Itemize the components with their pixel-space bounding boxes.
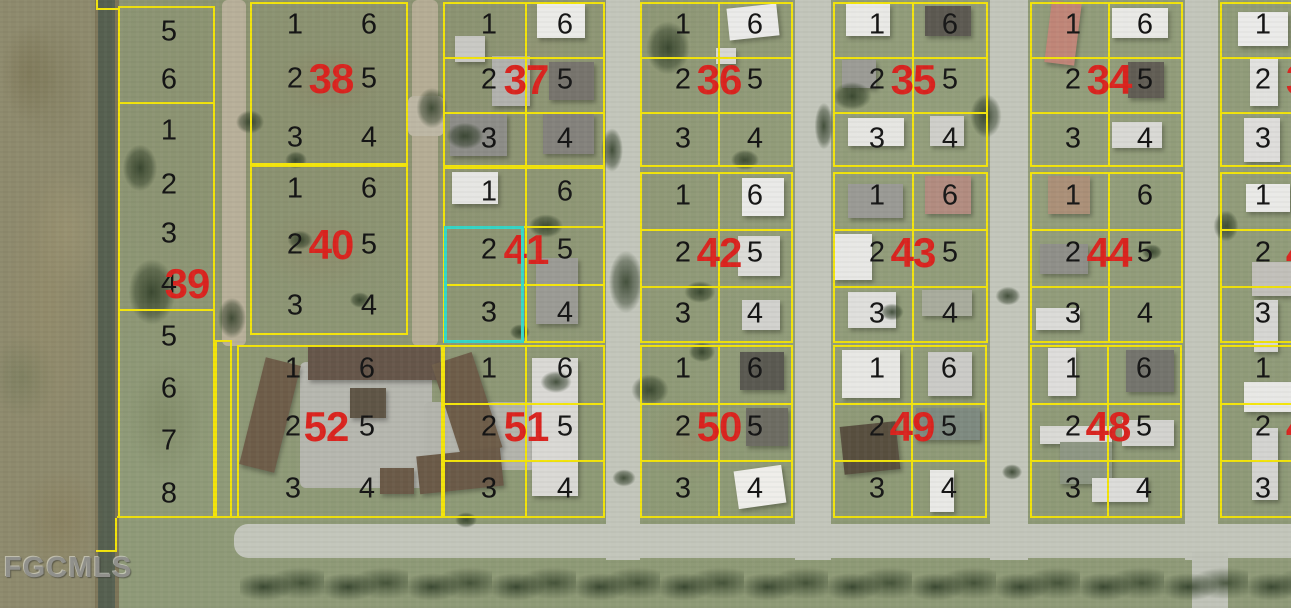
parcel-line <box>445 112 603 114</box>
lot-number: 6 <box>942 11 958 40</box>
block-number: 34 <box>1087 59 1132 101</box>
lot-number: 6 <box>1137 182 1153 211</box>
block-number: 50 <box>697 406 742 448</box>
lot-number: 1 <box>1255 11 1271 40</box>
lot-number: 4 <box>361 292 377 321</box>
lot-number: 3 <box>869 125 885 154</box>
lot-number: 1 <box>1255 182 1271 211</box>
parcel-line <box>1222 57 1291 59</box>
lot-number: 1 <box>481 11 497 40</box>
parcel-block-48: 12365448 <box>1030 345 1182 518</box>
lot-number: 5 <box>747 66 763 95</box>
lot-number: 3 <box>1255 125 1271 154</box>
lot-number: 3 <box>287 292 303 321</box>
lot-number: 1 <box>1255 355 1271 384</box>
block-number: 37 <box>504 59 549 101</box>
parcel-line <box>642 286 791 288</box>
lot-number: 1 <box>1065 182 1081 211</box>
lot-number: 1 <box>285 355 301 384</box>
block-number: 36 <box>697 59 742 101</box>
lot-number: 2 <box>675 413 691 442</box>
parcel-block-4: 1234 <box>1220 345 1291 518</box>
lot-number: 2 <box>161 171 177 200</box>
lot-number: 6 <box>1137 11 1153 40</box>
parcel-line <box>1222 403 1291 405</box>
lot-number: 2 <box>1065 66 1081 95</box>
lot-number: 5 <box>557 66 573 95</box>
parcel-block-34: 12365434 <box>1030 2 1183 167</box>
lot-number: 5 <box>1137 239 1153 268</box>
parcel-block-4: 1234 <box>1220 172 1291 343</box>
parcel-line <box>642 112 791 114</box>
lot-number: 4 <box>747 300 763 329</box>
lot-number: 4 <box>942 300 958 329</box>
lot-number: 1 <box>481 355 497 384</box>
lot-number: 5 <box>359 413 375 442</box>
lot-number: 4 <box>557 299 573 328</box>
lot-number: 4 <box>557 125 573 154</box>
lot-number: 1 <box>161 117 177 146</box>
lot-number: 6 <box>557 355 573 384</box>
parcel-line <box>120 102 213 104</box>
lot-number: 6 <box>361 11 377 40</box>
lot-number: 2 <box>1255 413 1271 442</box>
lot-number: 1 <box>675 355 691 384</box>
lot-number: 6 <box>942 182 958 211</box>
parcel-block-52: 12365452 <box>237 345 443 518</box>
lot-number: 3 <box>481 475 497 504</box>
block-number: 38 <box>309 58 354 100</box>
parcel-line <box>1222 286 1291 288</box>
lot-number: 4 <box>747 125 763 154</box>
lot-number: 3 <box>1255 475 1271 504</box>
parcel-line <box>117 516 239 518</box>
parcel-line <box>835 112 986 114</box>
block-number: 49 <box>890 406 935 448</box>
lot-number: 4 <box>1136 475 1152 504</box>
lot-number: 3 <box>481 125 497 154</box>
lot-number: 3 <box>161 220 177 249</box>
lot-number: 4 <box>1137 125 1153 154</box>
lot-number: 4 <box>941 475 957 504</box>
lot-number: 3 <box>869 300 885 329</box>
parcel-extension <box>215 340 232 518</box>
lot-number: 6 <box>161 375 177 404</box>
lot-number: 6 <box>747 355 763 384</box>
lot-number: 2 <box>869 66 885 95</box>
parcel-line <box>115 518 117 552</box>
aerial-map[interactable]: 1236543812365437123654361236543512365434… <box>0 0 1291 608</box>
lot-number: 2 <box>675 239 691 268</box>
lot-number: 2 <box>481 66 497 95</box>
lot-number: 5 <box>557 413 573 442</box>
lot-number: 1 <box>287 11 303 40</box>
parcel-block-40: 12365440 <box>250 165 408 335</box>
lot-number: 1 <box>287 175 303 204</box>
lot-number: 5 <box>942 239 958 268</box>
lot-number: 3 <box>285 475 301 504</box>
lot-number: 3 <box>675 300 691 329</box>
block-number: 3 <box>1286 59 1291 101</box>
parcel-line <box>1222 229 1291 231</box>
block-number: 52 <box>304 406 349 448</box>
lot-number: 4 <box>359 475 375 504</box>
lot-number: 5 <box>942 66 958 95</box>
lot-number: 6 <box>747 182 763 211</box>
lot-number: 5 <box>161 18 177 47</box>
lot-number: 3 <box>1065 300 1081 329</box>
lot-number: 1 <box>1065 11 1081 40</box>
parcel-blocks: 1236543812365437123654361236543512365434… <box>0 0 1291 608</box>
block-number: 4 <box>1286 406 1291 448</box>
lot-number: 2 <box>287 231 303 260</box>
lot-number: 4 <box>1137 300 1153 329</box>
block-number: 39 <box>165 263 210 305</box>
lot-number: 2 <box>1065 413 1081 442</box>
parcel-line <box>445 460 603 462</box>
lot-number: 2 <box>285 413 301 442</box>
lot-number: 7 <box>161 427 177 456</box>
lot-number: 6 <box>1136 355 1152 384</box>
parcel-line <box>120 309 213 311</box>
lot-number: 2 <box>869 413 885 442</box>
parcel-line <box>1032 460 1180 462</box>
lot-number: 2 <box>1255 239 1271 268</box>
lot-number: 1 <box>481 178 497 207</box>
parcel-line <box>1222 460 1291 462</box>
fgcmls-watermark: FGCMLS <box>4 552 132 585</box>
lot-number: 2 <box>675 66 691 95</box>
lot-number: 6 <box>557 11 573 40</box>
parcel-block-38: 12365438 <box>250 2 408 165</box>
lot-number: 2 <box>1065 239 1081 268</box>
parcel-line <box>835 460 985 462</box>
lot-number: 5 <box>941 413 957 442</box>
lot-number: 4 <box>942 125 958 154</box>
lot-number: 6 <box>747 11 763 40</box>
parcel-block-43: 12365443 <box>833 172 988 343</box>
lot-number: 1 <box>869 355 885 384</box>
lot-number: 2 <box>869 239 885 268</box>
lot-number: 8 <box>161 480 177 509</box>
lot-number: 3 <box>869 475 885 504</box>
lot-number: 5 <box>557 236 573 265</box>
parcel-block-35: 12365435 <box>833 2 988 167</box>
lot-number: 1 <box>869 182 885 211</box>
lot-number: 3 <box>287 124 303 153</box>
block-number: 51 <box>504 406 549 448</box>
lot-number: 3 <box>1255 300 1271 329</box>
parcel-block-44: 12365444 <box>1030 172 1183 343</box>
block-number: 4 <box>1286 232 1291 274</box>
lot-number: 1 <box>675 11 691 40</box>
parcel-line <box>1032 112 1181 114</box>
lot-number: 5 <box>1136 413 1152 442</box>
parcel-line <box>96 8 120 10</box>
block-number: 48 <box>1086 406 1131 448</box>
lot-number: 4 <box>557 475 573 504</box>
lot-number: 5 <box>747 413 763 442</box>
parcel-block-36: 12365436 <box>640 2 793 167</box>
block-number: 35 <box>891 59 936 101</box>
lot-number: 6 <box>557 178 573 207</box>
parcel-line <box>1222 112 1291 114</box>
lot-number: 2 <box>1255 66 1271 95</box>
block-number: 44 <box>1087 232 1132 274</box>
parcel-line <box>642 460 791 462</box>
lot-number: 5 <box>1137 66 1153 95</box>
parcel-line <box>835 286 986 288</box>
lot-number: 2 <box>287 65 303 94</box>
parcel-block-49: 12365449 <box>833 345 987 518</box>
block-number: 42 <box>697 232 742 274</box>
lot-number: 3 <box>1065 125 1081 154</box>
lot-number: 3 <box>675 125 691 154</box>
lot-number: 6 <box>161 66 177 95</box>
parcel-block-51: 12365451 <box>443 345 605 518</box>
lot-number: 3 <box>675 475 691 504</box>
lot-number: 1 <box>869 11 885 40</box>
parcel-block-50: 12365450 <box>640 345 793 518</box>
lot-number: 4 <box>747 475 763 504</box>
lot-number: 5 <box>161 323 177 352</box>
parcel-block-39: 561234567839 <box>118 6 215 518</box>
lot-number: 2 <box>481 413 497 442</box>
block-number: 43 <box>891 232 936 274</box>
lot-number: 6 <box>361 175 377 204</box>
lot-number: 1 <box>1065 355 1081 384</box>
highlighted-parcel <box>444 226 524 343</box>
lot-number: 3 <box>1065 475 1081 504</box>
parcel-block-3: 1233 <box>1220 2 1291 167</box>
lot-number: 1 <box>675 182 691 211</box>
lot-number: 4 <box>361 124 377 153</box>
lot-number: 6 <box>359 355 375 384</box>
block-number: 40 <box>309 224 354 266</box>
lot-number: 6 <box>941 355 957 384</box>
parcel-block-37: 12365437 <box>443 2 605 167</box>
parcel-line <box>1032 286 1181 288</box>
parcel-block-42: 12365442 <box>640 172 793 343</box>
lot-number: 5 <box>361 65 377 94</box>
lot-number: 5 <box>361 231 377 260</box>
lot-number: 5 <box>747 239 763 268</box>
